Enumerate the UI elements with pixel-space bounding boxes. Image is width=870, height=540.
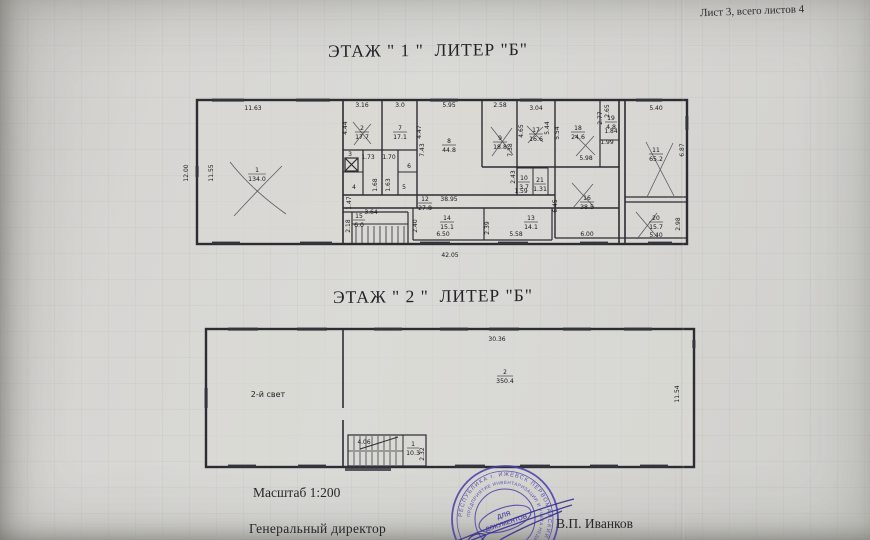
svg-text:11: 11: [652, 147, 660, 154]
svg-text:65.2: 65.2: [649, 156, 663, 163]
dim-label: 2.98: [675, 217, 682, 231]
dim-label: 5.40: [649, 232, 663, 239]
svg-text:17.7: 17.7: [355, 134, 369, 141]
dim-label: 38.95: [440, 196, 457, 203]
dim-label: 2.58: [493, 102, 507, 109]
signer-name: В.П. Иванков: [556, 516, 633, 532]
dim-label: 1.68: [372, 178, 379, 192]
svg-text:14.1: 14.1: [524, 224, 538, 231]
svg-text:2: 2: [360, 125, 364, 132]
floor2-plan: 2-й свет 2350.4 110.3 30.36 11.54 4.06 2…: [205, 328, 696, 471]
dim-label: 11.54: [674, 385, 681, 402]
signer-role-label: Генеральный директор: [249, 521, 386, 537]
dim-label: 6.87: [679, 143, 686, 157]
dim-label: 2.18: [345, 219, 352, 233]
dim-label: 2.39: [484, 221, 491, 235]
dim-label: 6.45: [552, 199, 559, 213]
svg-text:21: 21: [536, 177, 544, 184]
dim-label: 5.40: [649, 105, 663, 112]
svg-text:13: 13: [527, 215, 535, 222]
floor2-title: ЭТАЖ " 2 " ЛИТЕР "Б": [333, 285, 533, 308]
plan-drawing: 1134.0 217.7 717.1 844.8 918.8 1716.6 18…: [0, 0, 870, 540]
dim-label: 4.47: [416, 125, 423, 139]
dim-label: 2.32: [419, 447, 426, 461]
svg-text:6.0: 6.0: [354, 222, 364, 229]
dim-label: 4.06: [357, 439, 371, 446]
dim-label: 5.95: [442, 102, 456, 109]
svg-text:18.8: 18.8: [493, 144, 507, 151]
dim-label: 42.05: [441, 252, 458, 259]
dim-label: 4.44: [342, 121, 349, 135]
svg-text:17.1: 17.1: [393, 134, 407, 141]
dim-label: 6.50: [436, 231, 450, 238]
dim-label: 6.00: [580, 231, 594, 238]
svg-text:1: 1: [411, 441, 415, 448]
svg-text:15: 15: [355, 213, 363, 220]
dim-label: 1.84: [604, 128, 618, 135]
svg-text:15.1: 15.1: [440, 224, 454, 231]
svg-text:1: 1: [255, 167, 259, 174]
dim-label: 3.0: [395, 102, 405, 109]
dim-label: 12.00: [183, 164, 190, 181]
dim-label: 2.40: [412, 219, 419, 233]
stair-landing-protrusion: [345, 466, 391, 471]
svg-text:1.31: 1.31: [533, 186, 547, 193]
room-number: 4: [352, 184, 356, 191]
dim-label: 1.73: [361, 154, 375, 161]
svg-text:350.4: 350.4: [496, 378, 514, 385]
dim-label: 7.43: [419, 143, 426, 157]
svg-text:38.5: 38.5: [580, 204, 594, 211]
dim-label: 11.55: [208, 164, 215, 181]
round-stamp: РЕСПУБЛИКА г. ИЖЕВСК ПЕРВОМАЙСКИЙ РАЙОН …: [452, 466, 558, 540]
svg-text:15.7: 15.7: [649, 224, 663, 231]
svg-text:7: 7: [398, 125, 402, 132]
svg-text:12: 12: [421, 196, 429, 203]
svg-text:9: 9: [498, 135, 502, 142]
dim-label: 1.99: [600, 139, 614, 146]
svg-text:16.6: 16.6: [529, 136, 543, 143]
svg-text:8: 8: [447, 138, 451, 145]
dim-label: 5.44: [544, 121, 551, 135]
svg-text:10.3: 10.3: [406, 450, 420, 457]
dim-label: 5.98: [579, 155, 593, 162]
dim-label: 3.16: [355, 102, 369, 109]
svg-text:27.8: 27.8: [418, 205, 432, 212]
svg-text:24.6: 24.6: [571, 134, 585, 141]
dim-label: 4.65: [518, 124, 525, 138]
room-number: 3: [348, 151, 352, 158]
dim-label: 3.64: [364, 209, 378, 216]
dim-label: 7.38: [507, 143, 514, 157]
room-number: 6: [407, 163, 411, 170]
dim-label: 1.47: [346, 196, 353, 210]
svg-text:134.0: 134.0: [248, 176, 266, 183]
dim-label: 1.63: [385, 178, 392, 192]
floor1-title: ЭТАЖ " 1 " ЛИТЕР "Б": [328, 39, 528, 62]
dim-label: 11.63: [244, 105, 261, 112]
dim-label: 3.04: [529, 105, 543, 112]
scale-label: Масштаб 1:200: [253, 485, 340, 501]
dim-label: 5.54: [554, 126, 561, 140]
floor1-plan: 1134.0 217.7 717.1 844.8 918.8 1716.6 18…: [183, 99, 688, 259]
svg-text:17: 17: [532, 127, 540, 134]
dim-label: 1.59: [514, 188, 528, 195]
svg-text:16: 16: [583, 195, 591, 202]
svg-text:14: 14: [443, 215, 451, 222]
dim-label: 2.65: [604, 104, 611, 118]
double-height-space-label: 2-й свет: [251, 390, 286, 399]
room-number: 5: [402, 184, 406, 191]
svg-text:20: 20: [652, 215, 660, 222]
dim-label: 30.36: [488, 336, 505, 343]
dim-label: 1.70: [382, 154, 396, 161]
dim-label: 2.43: [510, 170, 517, 184]
svg-text:10: 10: [520, 175, 528, 182]
svg-text:44.8: 44.8: [442, 147, 456, 154]
dim-label: 2.77: [597, 111, 604, 125]
svg-text:2: 2: [503, 369, 507, 376]
dim-label: 5.58: [509, 231, 523, 238]
svg-text:18: 18: [574, 125, 582, 132]
scanned-floor-plan-sheet: Лист 3, всего листов 4 ЭТАЖ " 1 " ЛИТЕР …: [0, 0, 870, 540]
